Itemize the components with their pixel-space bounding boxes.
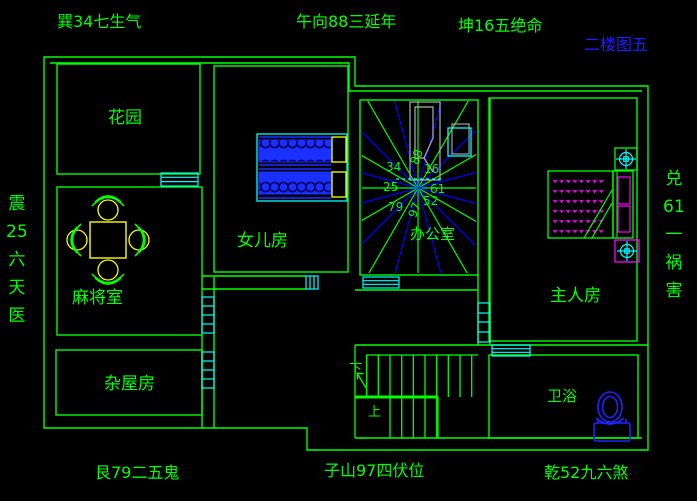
master-door xyxy=(478,303,490,342)
nightstand-bottom xyxy=(615,240,639,262)
master-bed xyxy=(548,171,633,238)
mattress xyxy=(259,140,331,162)
mahjong-chairs xyxy=(67,200,149,280)
pillow xyxy=(332,137,346,162)
star-number-ne: 79 xyxy=(388,200,403,214)
compass-label-east: 震 25 六 天 医 xyxy=(6,196,28,325)
floorplan-drawing xyxy=(0,0,697,501)
pillow xyxy=(332,172,346,197)
compass-label-southeast: 巽34七生气 xyxy=(57,14,141,30)
stair-treads-lower xyxy=(390,397,438,438)
pillow xyxy=(618,206,630,232)
nightstand-top xyxy=(615,148,637,170)
office-side-table xyxy=(448,124,471,156)
master-label: 主人房 xyxy=(550,288,601,305)
toilet xyxy=(594,392,630,441)
mahjong-door xyxy=(202,297,214,333)
twin-beds xyxy=(257,134,347,201)
mahjong-label: 麻将室 xyxy=(72,290,123,307)
storage-door xyxy=(202,352,214,388)
pillow xyxy=(618,177,630,204)
mahjong-table-set xyxy=(67,196,149,284)
star-number-sw: 16 xyxy=(424,162,439,176)
compass-label-west: 兑 61 一 祸 害 xyxy=(663,171,685,300)
mahjong-room xyxy=(57,187,202,335)
daughter-label: 女儿房 xyxy=(237,233,288,250)
garden-window xyxy=(161,173,198,186)
stair-treads-upper xyxy=(367,355,472,397)
compass-label-south: 午向88三延年 xyxy=(296,14,396,30)
star-number-e: 25 xyxy=(383,180,398,194)
storage-label: 杂屋房 xyxy=(104,376,155,393)
floorplan-canvas: 巽34七生气 午向88三延年 坤16五绝命 二楼图五 震 25 六 天 医 兑 … xyxy=(0,0,697,501)
office-wall-window xyxy=(363,277,399,288)
bathroom-label: 卫浴 xyxy=(547,389,577,404)
blanket-pattern xyxy=(553,180,603,233)
stairs-down-label: 下 xyxy=(349,363,362,376)
compass-label-southwest: 坤16五绝命 xyxy=(458,18,542,34)
garden-label: 花园 xyxy=(108,110,142,127)
windows-doors xyxy=(161,173,530,388)
page-title: 二楼图五 xyxy=(584,37,648,53)
corridor-end-window xyxy=(306,276,318,289)
compass-label-northeast: 艮79二五鬼 xyxy=(95,465,179,481)
compass-label-northwest: 乾52九六煞 xyxy=(544,465,628,481)
office-label: 办公室 xyxy=(410,227,455,242)
compass-star-rays xyxy=(208,0,628,398)
star-number-nw: 52 xyxy=(423,194,438,208)
star-number-se: 34 xyxy=(386,160,401,174)
compass-label-north: 子山97四伏位 xyxy=(324,463,424,479)
staircase xyxy=(355,345,478,438)
stairs-up-label: 上 xyxy=(368,406,381,419)
mahjong-table xyxy=(90,222,126,258)
chair-backrests xyxy=(71,196,145,284)
mattress xyxy=(259,172,331,194)
